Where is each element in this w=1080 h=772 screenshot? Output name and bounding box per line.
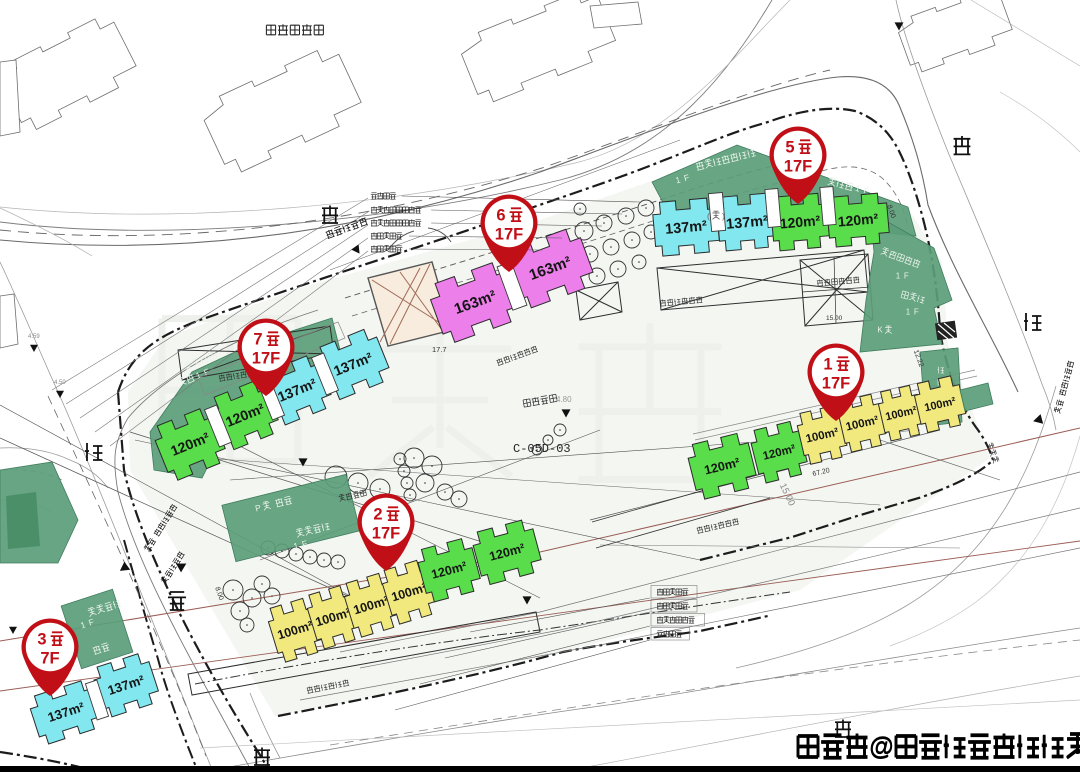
- svg-text:4.59: 4.59: [28, 334, 40, 340]
- svg-text:1: 1: [823, 356, 832, 374]
- svg-text:3: 3: [37, 631, 46, 649]
- svg-text:): ): [722, 211, 725, 221]
- svg-text:15.00: 15.00: [826, 315, 843, 322]
- svg-text:17F: 17F: [495, 226, 523, 244]
- svg-text:1: 1: [906, 308, 911, 317]
- svg-text:1: 1: [896, 272, 901, 281]
- svg-text:17F: 17F: [372, 525, 400, 543]
- svg-text:17F: 17F: [784, 158, 812, 176]
- svg-text:6: 6: [496, 207, 505, 225]
- svg-text:K: K: [877, 326, 883, 335]
- svg-text:(: (: [707, 211, 710, 221]
- svg-text:17.7: 17.7: [432, 345, 447, 354]
- svg-text:4.80: 4.80: [556, 395, 572, 404]
- svg-text:7F: 7F: [40, 650, 59, 668]
- svg-text:17F: 17F: [822, 375, 850, 393]
- svg-text:@: @: [869, 734, 893, 762]
- svg-text:7: 7: [253, 331, 262, 349]
- svg-text:C-05D-03: C-05D-03: [513, 442, 571, 456]
- svg-text:F: F: [914, 308, 919, 317]
- svg-text:2: 2: [373, 506, 382, 524]
- svg-text:5: 5: [785, 139, 794, 157]
- svg-text:4.50: 4.50: [54, 380, 66, 386]
- svg-text:F: F: [904, 272, 909, 281]
- svg-text:17F: 17F: [252, 350, 280, 368]
